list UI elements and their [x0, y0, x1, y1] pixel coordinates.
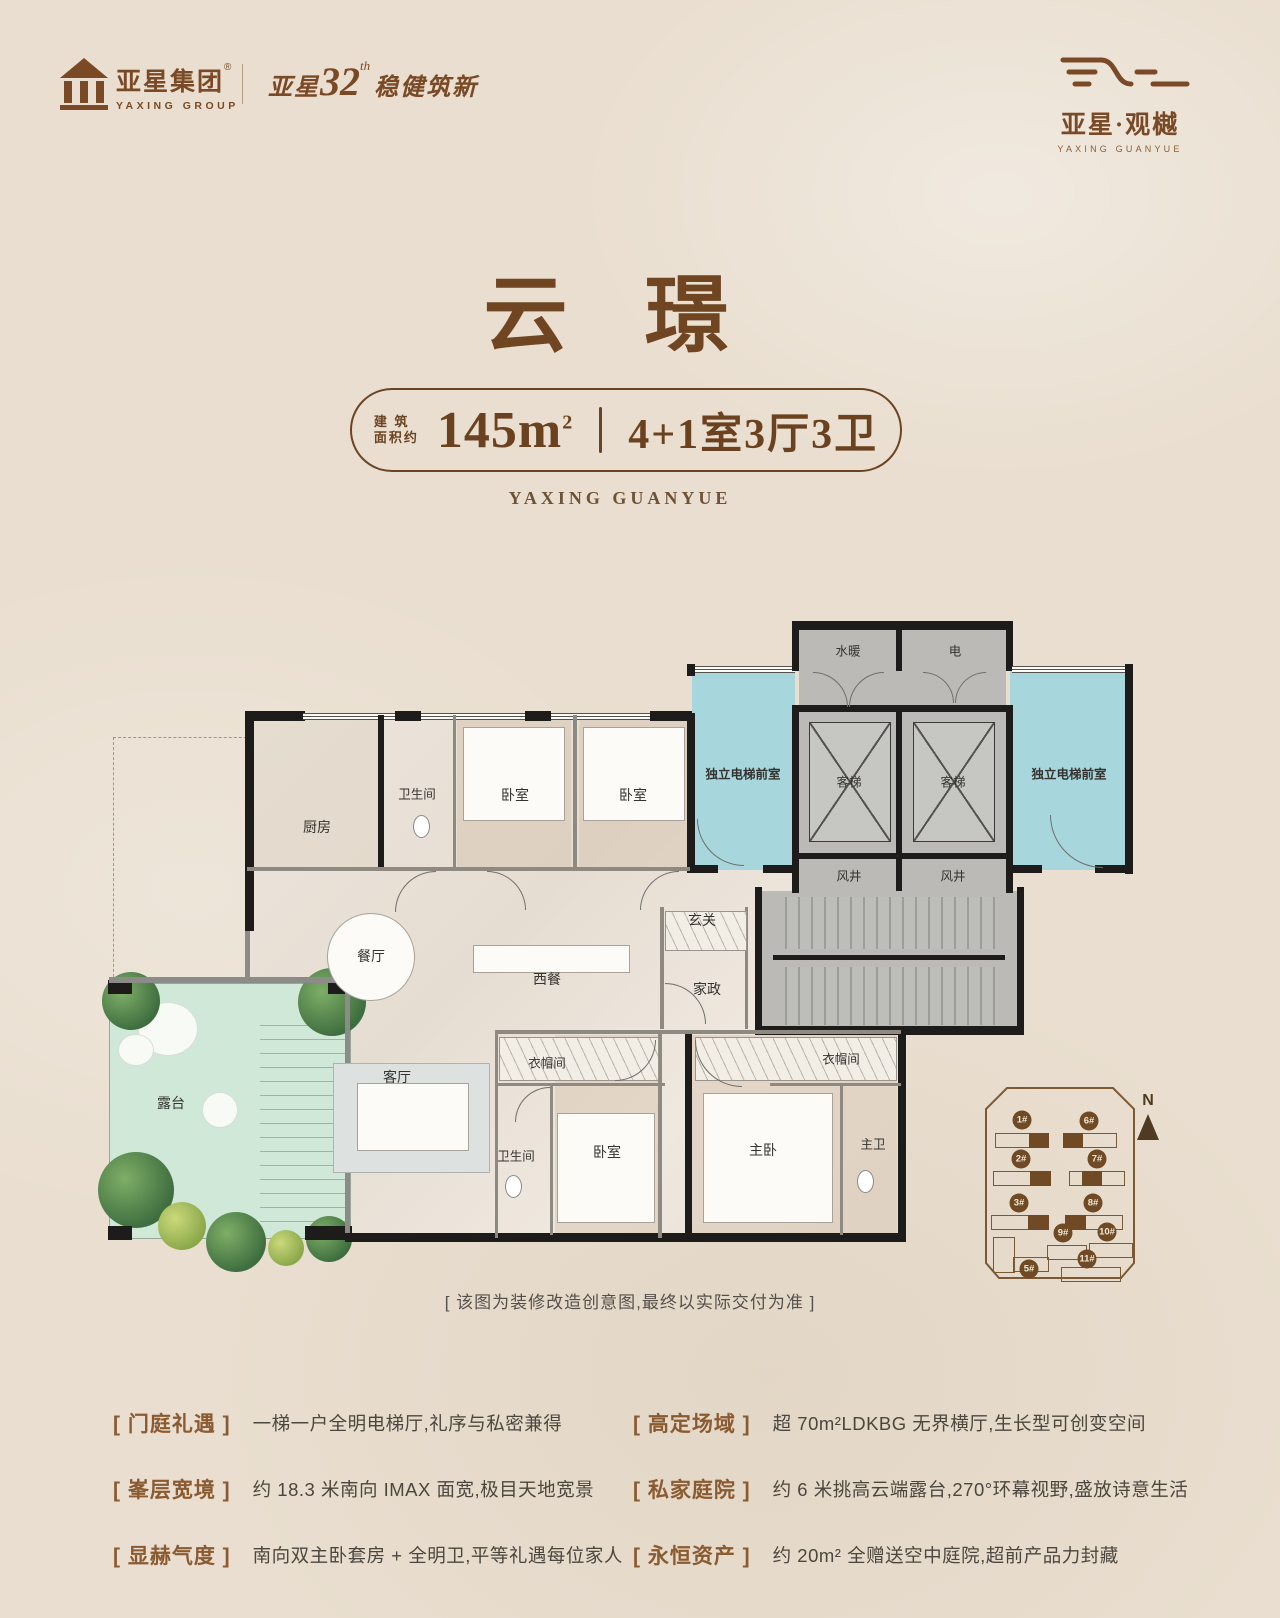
commercial-footprint [993, 1237, 1015, 1273]
wall [245, 711, 254, 931]
stair-flight-upper [785, 897, 995, 949]
feature-row: [ 门庭礼遇 ] 一梯一户全明电梯厅,礼序与私密兼得 [113, 1408, 613, 1438]
partition [840, 1085, 843, 1235]
terrace-cloud-deco [202, 1092, 238, 1128]
partition [247, 867, 690, 871]
wall [1006, 853, 1013, 893]
feature-column-left: [ 门庭礼遇 ] 一梯一户全明电梯厅,礼序与私密兼得 [ 峯层宽境 ] 约 18… [113, 1408, 613, 1570]
unit-highlight [1029, 1133, 1049, 1148]
wall [792, 621, 799, 671]
wall [1012, 865, 1042, 873]
toilet [413, 815, 430, 838]
room-label-living: 客厅 [383, 1067, 411, 1087]
group-logo-text: 亚星集团® YAXING GROUP [116, 62, 239, 112]
room-label-shaft-1: 风井 [836, 866, 861, 885]
terrace-area [109, 983, 351, 1239]
room-label-elevator-2: 客梯 [940, 772, 965, 791]
toilet [505, 1175, 522, 1198]
window-band [1012, 666, 1130, 673]
feature-tag: [ 永恒资产 ] [633, 1540, 751, 1570]
anniversary-pre: 亚星 [268, 75, 320, 101]
area-superscript: 2 [562, 411, 573, 433]
room-label-shaft-2: 风井 [940, 866, 965, 885]
room-label-dining: 餐厅 [357, 946, 385, 966]
wall-pier [395, 711, 421, 721]
room-label-housekeeping: 家政 [693, 979, 721, 999]
unit-highlight [1082, 1171, 1102, 1186]
unit-highlight [1028, 1215, 1049, 1230]
room-label-cloak-left: 衣帽间 [528, 1053, 566, 1072]
building-badge-8: 8# [1084, 1194, 1103, 1213]
room-label-lobby-right: 独立电梯前室 [1031, 764, 1106, 783]
wall-pier [525, 711, 551, 721]
plan-disclaimer: [ 该图为装修改造创意图,最终以实际交付为准 ] [0, 1288, 1260, 1313]
building-badge-2: 2# [1012, 1150, 1031, 1169]
stair-flight-lower [785, 967, 995, 1025]
feature-desc: 约 20m² 全赠送空中庭院,超前产品力封藏 [773, 1542, 1119, 1568]
partition [660, 907, 664, 1029]
terrace-corner-pier [108, 1226, 132, 1240]
group-logo-cn: 亚星集团 [116, 69, 224, 96]
building-badge-10: 10# [1098, 1223, 1117, 1242]
wall [1017, 887, 1024, 1033]
area-value: 145m2 [437, 401, 573, 460]
header-divider [242, 64, 243, 104]
north-indicator: N [1128, 1092, 1168, 1140]
brand-logo: 亚星·观樾 YAXING GUANYUE [1040, 50, 1200, 154]
kitchen-area [247, 717, 378, 867]
room-label-elevator-1: 客梯 [836, 772, 861, 791]
building-badge-5: 5# [1020, 1260, 1039, 1279]
room-label-master-bath: 主卫 [860, 1134, 885, 1153]
unit-title: 云 璟 [0, 248, 1240, 369]
room-label-kitchen: 厨房 [303, 817, 331, 837]
terrace-plant [206, 1212, 266, 1272]
anniversary-sup: th [360, 58, 370, 73]
wall-pier [650, 711, 692, 721]
feature-row: [ 显赫气度 ] 南向双主卧套房 + 全明卫,平等礼遇每位家人 [113, 1540, 613, 1570]
area-label: 建 筑 面积约 [374, 414, 419, 446]
building-badge-9: 9# [1054, 1224, 1073, 1243]
building-footprint [1063, 1133, 1117, 1148]
feature-column-right: [ 高定场域 ] 超 70m²LDKBG 无界横厅,生长型可创变空间 [ 私家庭… [633, 1408, 1173, 1570]
kitchen-right-wall [378, 715, 384, 871]
room-label-master-bedroom: 主卧 [749, 1140, 777, 1160]
room-label-foyer: 玄关 [688, 910, 716, 930]
building-badge-3: 3# [1010, 1194, 1029, 1213]
feature-row: [ 高定场域 ] 超 70m²LDKBG 无界横厅,生长型可创变空间 [633, 1408, 1173, 1438]
feature-tag: [ 私家庭院 ] [633, 1474, 751, 1504]
wall [896, 855, 902, 891]
room-label-bedroom-3: 卧室 [593, 1142, 621, 1162]
room-label-utility-water: 水暖 [835, 641, 860, 660]
building-footprint [991, 1215, 1049, 1230]
feature-row: [ 私家庭院 ] 约 6 米挑高云端露台,270°环幕视野,盛放诗意生活 [633, 1474, 1173, 1504]
feature-tag: [ 门庭礼遇 ] [113, 1408, 231, 1438]
group-logo-en: YAXING GROUP [116, 100, 239, 112]
wall [896, 625, 902, 671]
wall [245, 711, 305, 721]
partition [495, 1083, 665, 1086]
feature-tag: [ 峯层宽境 ] [113, 1474, 231, 1504]
window-band [303, 713, 693, 720]
room-label-cloak-right: 衣帽间 [822, 1049, 860, 1068]
floorplan: 厨房 卫生间 卧室 卧室 独立电梯前室 水暖 电 客梯 客梯 风井 风井 独立电… [95, 615, 1140, 1275]
partition [495, 1030, 901, 1034]
anniversary-post: 稳健筑新 [374, 75, 478, 101]
room-label-western-dining: 西餐 [533, 969, 561, 989]
unit-highlight [1030, 1171, 1051, 1186]
partition [770, 1083, 901, 1086]
brand-en: YAXING GUANYUE [1040, 144, 1200, 154]
partition [495, 1033, 498, 1238]
room-label-bath-bottom: 卫生间 [497, 1146, 535, 1165]
poster-page: 亚星集团® YAXING GROUP 亚星32th 稳健筑新 亚星·观樾 YAX… [0, 0, 1280, 1618]
badge-divider-bar [599, 407, 602, 453]
toilet [857, 1170, 874, 1193]
room-label-terrace: 露台 [157, 1093, 185, 1113]
partition [573, 715, 577, 871]
terrace-plant [268, 1230, 304, 1266]
open-void-dashed-outline [113, 737, 267, 982]
room-label-bath-top: 卫生间 [398, 784, 436, 803]
room-label-bedroom-2: 卧室 [619, 785, 647, 805]
wall [763, 865, 795, 873]
registered-mark: ® [224, 62, 231, 73]
room-label-utility-electric: 电 [949, 641, 962, 660]
wall [792, 705, 799, 857]
anniversary-calligraphy: 亚星32th 稳健筑新 [268, 58, 478, 105]
anniversary-number: 32 [320, 59, 360, 104]
area-label-bottom: 面积约 [374, 430, 419, 446]
wall [896, 707, 902, 857]
building-badge-7: 7# [1088, 1150, 1107, 1169]
feature-desc: 约 6 米挑高云端露台,270°环幕视野,盛放诗意生活 [773, 1476, 1189, 1502]
bed-2 [583, 727, 685, 821]
terrace-cloud-deco [118, 1034, 154, 1066]
wall-pier [687, 664, 695, 676]
spec-badge: 建 筑 面积约 145m2 4+1室3厅3卫 [350, 388, 902, 472]
wall [687, 713, 695, 873]
north-label: N [1128, 1092, 1168, 1110]
north-arrow-icon [1137, 1114, 1159, 1140]
wall [792, 853, 799, 893]
wall [1125, 664, 1133, 874]
feature-tag: [ 高定场域 ] [633, 1408, 751, 1438]
terrace-top-wall [109, 977, 349, 983]
core-top-wall [792, 621, 1013, 630]
window-band [695, 666, 795, 673]
wall [692, 865, 718, 873]
feature-desc: 超 70m²LDKBG 无界横厅,生长型可创变空间 [773, 1410, 1146, 1436]
area-label-top: 建 筑 [374, 414, 419, 430]
layout-text: 4+1室3厅3卫 [628, 400, 878, 461]
hero-subtitle: YAXING GUANYUE [0, 488, 1240, 509]
room-label-lobby-left: 独立电梯前室 [705, 764, 780, 783]
site-minimap: 1# 6# 2# 7# 3# 8# 9# 10# 11# 5# [985, 1087, 1135, 1279]
bottom-outer-wall [345, 1233, 905, 1242]
brand-cn: 亚星·观樾 [1040, 105, 1200, 141]
partition [453, 715, 456, 871]
partition [550, 1085, 553, 1235]
stair-landing-bar [773, 955, 1005, 960]
wall [755, 887, 762, 1033]
building-footprint [1069, 1171, 1125, 1186]
unit-highlight [1063, 1133, 1083, 1148]
bed-1 [463, 727, 565, 821]
group-logo-icon [60, 58, 108, 110]
feature-desc: 南向双主卧套房 + 全明卫,平等礼遇每位家人 [253, 1542, 623, 1568]
building-badge-1: 1# [1013, 1111, 1032, 1130]
feature-desc: 一梯一户全明电梯厅,礼序与私密兼得 [253, 1410, 563, 1436]
room-label-bedroom-1: 卧室 [501, 785, 529, 805]
right-outer-wall [898, 1030, 906, 1242]
brand-roofline-icon [1045, 50, 1195, 96]
building-badge-11: 11# [1078, 1250, 1097, 1269]
wall [245, 931, 250, 981]
master-left-wall [685, 1033, 692, 1238]
building-footprint [993, 1171, 1051, 1186]
terrace-plant [158, 1202, 206, 1250]
bed-3 [557, 1113, 655, 1223]
feature-desc: 约 18.3 米南向 IMAX 面宽,极目天地宽景 [253, 1476, 594, 1502]
feature-tag: [ 显赫气度 ] [113, 1540, 231, 1570]
feature-row: [ 永恒资产 ] 约 20m² 全赠送空中庭院,超前产品力封藏 [633, 1540, 1173, 1570]
building-badge-6: 6# [1080, 1112, 1099, 1131]
living-rug [357, 1083, 469, 1151]
feature-row: [ 峯层宽境 ] 约 18.3 米南向 IMAX 面宽,极目天地宽景 [113, 1474, 613, 1504]
building-footprint [995, 1133, 1049, 1148]
wall [792, 853, 1013, 859]
wall [1006, 621, 1013, 671]
building-footprint [1061, 1267, 1121, 1282]
wall [1006, 705, 1013, 857]
